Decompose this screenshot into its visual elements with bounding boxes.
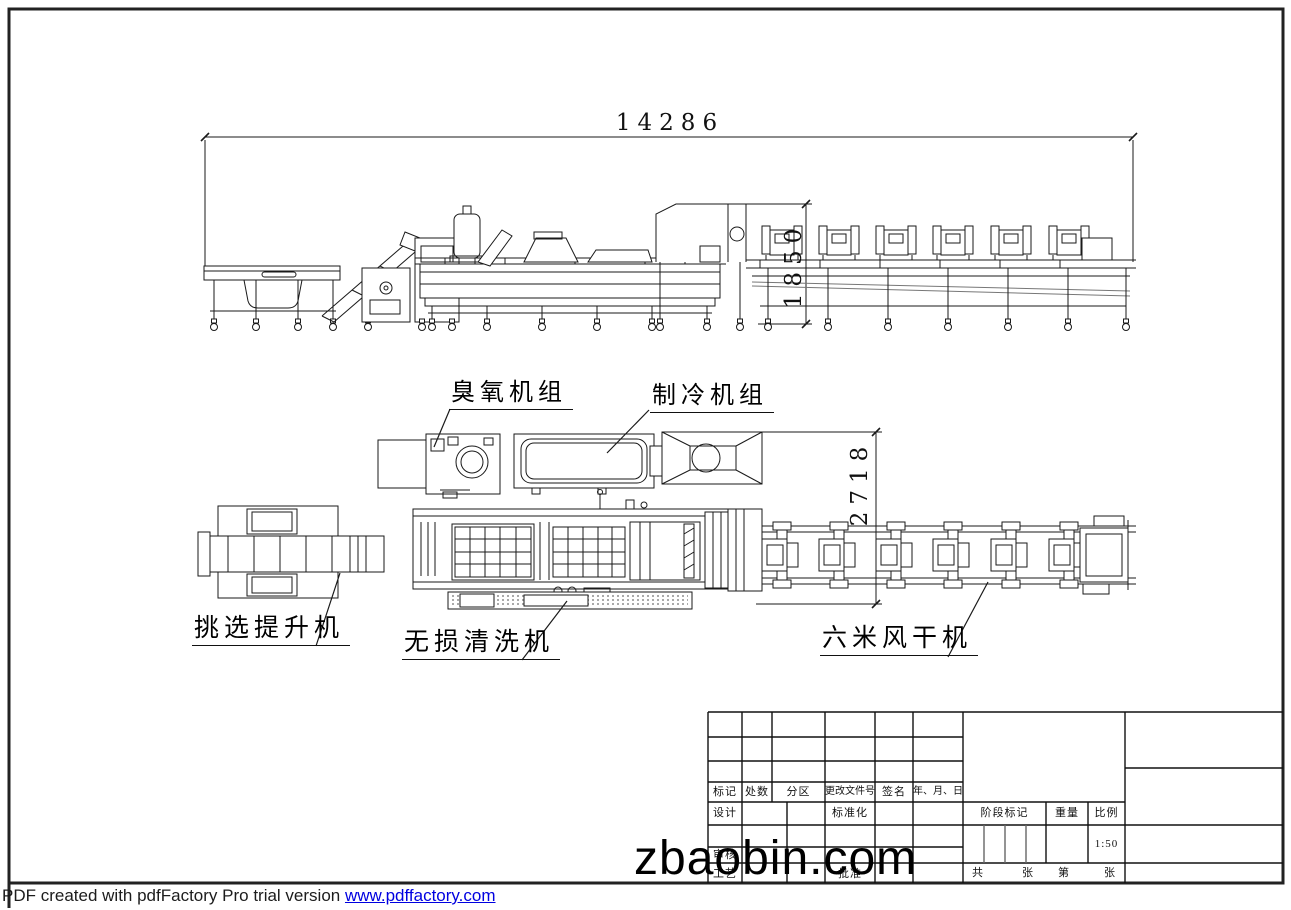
label-ozone-unit: 臭氧机组 [449, 381, 573, 410]
tb-change-doc-no: 更改文件号 [825, 787, 875, 797]
dryer-plan [705, 509, 1136, 594]
tb-sheet-total-label: 共 [968, 868, 988, 879]
dimension-dryer-height: 1850 [781, 219, 807, 311]
sorting-elevator-plan [198, 506, 384, 598]
pdf-page: { "page": { "watermark": "zbaobin.com", … [0, 0, 1291, 910]
tb-sheet-no-label: 第 [1054, 868, 1074, 879]
tb-design: 设计 [708, 808, 742, 819]
chiller-unit-plan [514, 434, 668, 494]
pdffactory-link[interactable]: www.pdffactory.com [345, 886, 496, 905]
washer-plan [413, 490, 731, 596]
cabinet-1 [362, 268, 410, 322]
tb-weight: 重量 [1046, 808, 1088, 819]
tb-sheet-no-unit: 张 [1100, 868, 1120, 879]
tb-revision-mark: 标记 [708, 787, 742, 798]
tb-scale-label: 比例 [1088, 808, 1125, 819]
infeed-conveyor [204, 266, 340, 331]
tb-stage-mark: 阶段标记 [963, 808, 1046, 819]
tb-revision-zone: 分区 [772, 787, 825, 798]
walkway-plan [448, 592, 692, 609]
tb-signature: 签名 [875, 787, 913, 798]
tb-sheet-total-unit: 张 [1018, 868, 1038, 879]
drawing-linework [0, 0, 1291, 910]
tb-date: 年、月、日 [913, 787, 963, 797]
condenser-unit-plan [662, 432, 762, 484]
elevation-view [201, 133, 1137, 331]
tb-revision-count: 处数 [742, 787, 772, 798]
tb-scale-value: 1:50 [1088, 839, 1125, 850]
dimension-overall-length: 14286 [595, 110, 745, 136]
pdf-footer-text: PDF created with pdfFactory Pro trial ve… [2, 886, 345, 905]
dimension-line-width: 2718 [847, 435, 873, 531]
tb-standardization: 标准化 [825, 808, 875, 819]
pdf-footer: PDF created with pdfFactory Pro trial ve… [2, 886, 496, 906]
label-dryer: 六米风干机 [820, 626, 978, 656]
ozone-unit-plan [378, 434, 500, 498]
label-sorting-elevator: 挑选提升机 [192, 616, 350, 646]
label-chiller-unit: 制冷机组 [650, 384, 774, 413]
ozone-tank [450, 206, 484, 262]
watermark-text: zbaobin.com [634, 831, 917, 886]
label-washer: 无损清洗机 [402, 630, 560, 660]
